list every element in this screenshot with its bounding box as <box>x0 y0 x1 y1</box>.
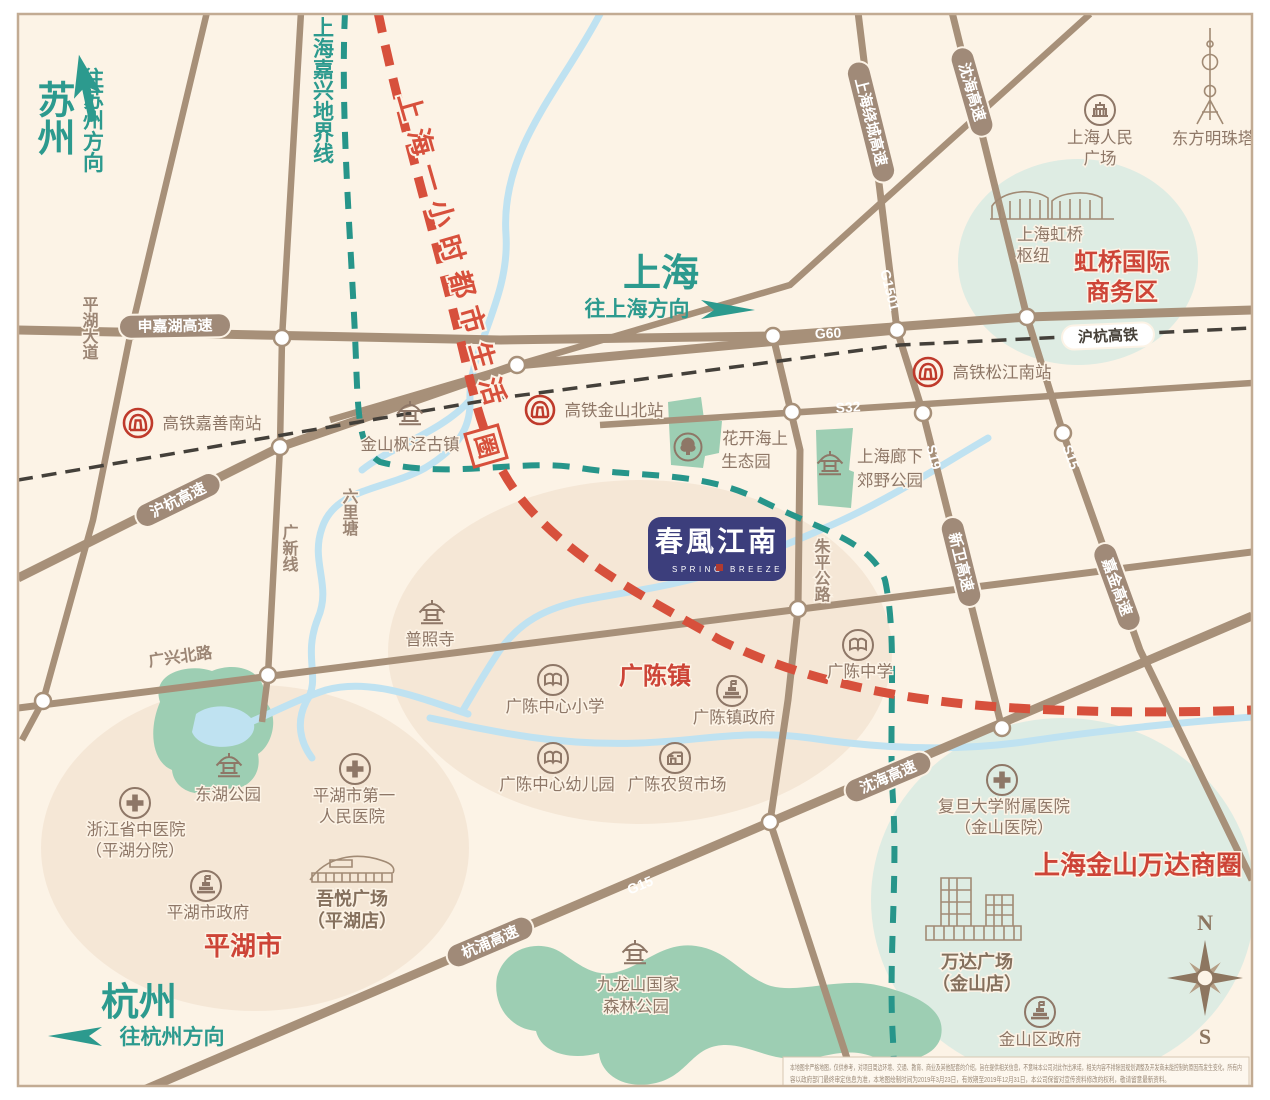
pinghu-city-label: 平湖市 <box>204 931 282 961</box>
wuyue-mall-label-1: 吾悦广场 <box>316 888 388 909</box>
boundary-line-label: 上海嘉兴地界线 <box>311 17 335 164</box>
svg-text:S32: S32 <box>835 398 861 416</box>
pearl-tower-label: 东方明珠塔 <box>1172 129 1255 148</box>
svg-text:申嘉湖高速: 申嘉湖高速 <box>137 316 212 335</box>
life-circle-label-end: 圈 <box>465 425 507 467</box>
disclaimer-line-1: 本地图非严格地图，仅供参考，对项目周边环境、交通、教育、商业及其他配套的介绍，旨… <box>790 1062 1242 1072</box>
road-pill-shenjiahu: 申嘉湖高速 <box>119 313 231 339</box>
fudan-hospital-label-1: 复旦大学附属医院 <box>938 797 1070 816</box>
gc-government-label: 广陈镇政府 <box>693 708 776 727</box>
wuyue-mall-label-2: （平湖店） <box>307 910 397 931</box>
wanda-cbd-label: 上海金山万达商圈 <box>1034 850 1242 880</box>
hongqiao-cbd-label-2: 商务区 <box>1086 278 1158 306</box>
rail-station-icon <box>124 409 152 437</box>
map-canvas: 申嘉湖高速 G60 沪杭高速 沪杭高铁 上海绕城高速 G1501 沈海高速 S3… <box>0 0 1270 1100</box>
rail-station-icon <box>526 396 554 424</box>
station-jiashan-south-label: 高铁嘉善南站 <box>163 414 262 433</box>
ph-government-label: 平湖市政府 <box>167 903 250 922</box>
logo-en-left: SPRING <box>672 565 724 574</box>
logo-cn-text: 春風江南 <box>655 525 779 558</box>
wanda-plaza-label-2: （金山店） <box>932 973 1022 994</box>
wanda-plaza-label-1: 万达广场 <box>940 951 1013 972</box>
gc-primary-school-label: 广陈中心小学 <box>506 697 605 716</box>
hongqiao-hub-label-1: 上海虹桥 <box>1017 225 1083 244</box>
ph-hospital-label-1: 平湖市第一 <box>313 786 396 805</box>
svg-text:沪杭高铁: 沪杭高铁 <box>1078 326 1139 347</box>
rail-station-icon <box>914 358 942 386</box>
huakai-park-label-2: 生态园 <box>721 452 771 471</box>
huakai-park-label-1: 花开海上 <box>722 429 788 448</box>
svg-text:G60: G60 <box>814 325 841 342</box>
road-name-zhuping: 朱平公路 <box>812 537 831 603</box>
compass-center <box>1197 970 1214 987</box>
jiulongshan-label-1: 九龙山国家 <box>597 975 680 994</box>
jinshan-government-label: 金山区政府 <box>999 1030 1082 1049</box>
project-logo: 春風江南 SPRING BREEZE <box>648 517 786 581</box>
road-name-guangxin: 广新线 <box>280 523 299 573</box>
langxia-park-label-1: 上海廊下 <box>857 447 923 466</box>
shanghai-label: 上海 <box>623 253 699 295</box>
compass-south-label: S <box>1199 1024 1211 1049</box>
hangzhou-dir-label: 往杭州方向 <box>120 1025 225 1049</box>
rail-pill-huhang-hsr: 沪杭高铁 <box>1062 322 1155 350</box>
fudan-hospital-label-2: （金山医院） <box>955 818 1054 837</box>
compass-north-label: N <box>1197 910 1213 935</box>
zj-hospital-label-1: 浙江省中医院 <box>87 820 186 839</box>
gc-middle-school-label: 广陈中学 <box>827 662 893 681</box>
disclaimer-line-2: 容以政府部门最终审定信息为准，本地图绘制时间为2019年3月23日，有效期至20… <box>790 1074 1170 1084</box>
logo-seal-icon <box>716 564 723 571</box>
zj-hospital-label-2: （平湖分院） <box>86 841 185 860</box>
jiulongshan-label-2: 森林公园 <box>603 997 669 1016</box>
fengjing-town-label: 金山枫泾古镇 <box>361 435 460 454</box>
road-label-g60: G60 <box>814 325 841 342</box>
langxia-park-label-2: 郊野公园 <box>857 471 923 490</box>
suzhou-dir-label: 往苏州方向 <box>81 67 105 173</box>
renmin-square-label-2: 广场 <box>1084 149 1117 168</box>
suzhou-label: 苏州 <box>31 80 75 156</box>
hangzhou-label: 杭州 <box>101 982 177 1024</box>
ph-hospital-label-2: 人民医院 <box>319 807 385 826</box>
shanghai-dir-label: 往上海方向 <box>585 297 690 321</box>
puzhao-temple-label: 普照寺 <box>405 630 455 649</box>
donghu-park-label: 东湖公园 <box>195 785 261 804</box>
renmin-square-label-1: 上海人民 <box>1067 128 1133 147</box>
road-name-pinghu-avenue: 平湖大道 <box>80 296 99 360</box>
location-map: 申嘉湖高速 G60 沪杭高速 沪杭高铁 上海绕城高速 G1501 沈海高速 S3… <box>0 0 1270 1100</box>
gc-kindergarten-label: 广陈中心幼儿园 <box>499 775 615 794</box>
road-label-s32: S32 <box>835 398 861 416</box>
gc-market-label: 广陈农贸市场 <box>628 775 727 794</box>
waterway-name-liulitang: 六里塘 <box>340 487 359 537</box>
logo-en-right: BREEZE <box>730 565 783 574</box>
guangchen-town-label: 广陈镇 <box>619 662 691 690</box>
hongqiao-cbd-label-1: 虹桥国际 <box>1074 249 1170 276</box>
station-jinshan-north-label: 高铁金山北站 <box>565 401 664 420</box>
station-songjiang-south-label: 高铁松江南站 <box>953 363 1052 382</box>
hongqiao-hub-label-2: 枢纽 <box>1017 246 1050 265</box>
